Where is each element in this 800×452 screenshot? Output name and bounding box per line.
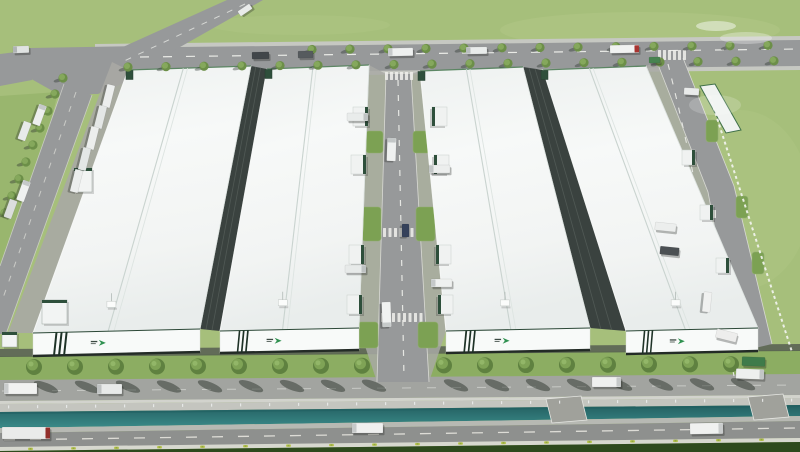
structure-green-edge: [42, 300, 67, 303]
crosswalk-bar: [678, 50, 681, 60]
tree-crown-light: [51, 90, 57, 96]
hedge-bush: [544, 441, 549, 444]
tree-crown-light: [574, 43, 580, 49]
truck-body: [690, 423, 723, 435]
truck: [736, 369, 766, 382]
canal-post: [472, 401, 473, 404]
tree-highlight: [316, 360, 321, 365]
truck-cab: [388, 138, 396, 143]
dock-door: [710, 205, 713, 220]
scene-canvas: [0, 0, 800, 452]
canal-post: [95, 405, 96, 408]
hedge-bush: [71, 447, 76, 450]
bush-core: [374, 444, 376, 446]
dock-door: [363, 155, 366, 174]
rooftop-unit-shadow: [108, 308, 117, 310]
tree-highlight: [111, 361, 116, 366]
crosswalk-bar: [420, 313, 423, 322]
tree-crown-light: [29, 141, 35, 147]
truck-body: [252, 52, 269, 59]
canal-post: [356, 402, 357, 405]
canal-post: [646, 400, 647, 403]
tree-crown-light: [732, 57, 738, 63]
truck: [431, 279, 454, 289]
tree-highlight: [644, 359, 649, 364]
tree-highlight: [480, 360, 485, 365]
truck: [384, 138, 396, 163]
gatehouse: [42, 300, 69, 326]
logo-text-mark: [91, 343, 96, 344]
canal-post: [733, 399, 734, 402]
tree-crown-light: [352, 61, 358, 67]
truck: [659, 246, 680, 258]
landscape-patch: [706, 120, 718, 142]
truck-cab: [466, 48, 471, 54]
landscape-patch: [366, 131, 383, 153]
corner-stair-unit: [265, 70, 272, 79]
bush-core: [116, 447, 118, 449]
truck-cab: [759, 370, 764, 379]
rooftop-unit: [671, 300, 680, 306]
truck-body: [352, 423, 383, 433]
truck-body: [4, 383, 37, 394]
hedge-bush: [372, 443, 377, 446]
hedge-bush: [716, 439, 721, 442]
truck: [345, 265, 368, 275]
truck: [684, 88, 701, 98]
tree-crown-light: [770, 57, 776, 63]
truck: [252, 52, 271, 62]
tree-crown-light: [422, 44, 428, 50]
corner-stair-unit: [418, 72, 425, 81]
bush-core: [761, 439, 763, 441]
crosswalk-bar: [405, 72, 408, 80]
tree-crown-light: [580, 59, 586, 65]
tree-crown-light: [8, 192, 14, 198]
truck: [298, 51, 315, 60]
west-exit-road: [0, 50, 32, 86]
bush-core: [202, 446, 204, 448]
tree-crown-light: [466, 60, 472, 66]
tree-crown-light: [15, 175, 21, 181]
tree-crown-light: [238, 62, 244, 68]
hedge-bush: [415, 443, 420, 446]
tree-highlight: [439, 360, 444, 365]
canal-post: [559, 401, 560, 404]
dock-door: [726, 258, 729, 273]
canal-post: [211, 404, 212, 407]
dock-bay: [347, 295, 364, 316]
tree-crown-light: [124, 63, 130, 69]
tree-highlight: [603, 359, 608, 364]
tree-crown-light: [764, 41, 770, 47]
truck-body: [402, 224, 409, 237]
tree-highlight: [562, 359, 567, 364]
crosswalk-bar: [389, 228, 392, 237]
truck-cab: [97, 385, 102, 394]
crosswalk-bar: [673, 50, 676, 60]
tree-highlight: [357, 360, 362, 365]
truck: [4, 383, 39, 396]
truck-cab: [13, 47, 17, 53]
rooftop-unit-shadow: [672, 306, 681, 308]
tree-highlight: [275, 361, 280, 366]
truck: [400, 224, 409, 239]
rooftop-unit: [278, 300, 287, 306]
landscape-patch: [752, 252, 764, 274]
tree-crown-light: [59, 74, 65, 80]
canal-post: [443, 402, 444, 405]
tree-crown-light: [428, 60, 434, 66]
dock-bay: [436, 295, 453, 316]
canal-post: [588, 400, 589, 403]
truck-cab: [362, 266, 367, 273]
canal-post: [124, 404, 125, 407]
bush-core: [30, 448, 32, 450]
dock-door: [692, 150, 695, 165]
tree-crown-light: [688, 42, 694, 48]
canal-post: [414, 402, 415, 405]
bush-core: [417, 443, 419, 445]
truck: [429, 165, 452, 175]
logo-text-mark: [267, 341, 272, 342]
tree-highlight: [70, 361, 75, 366]
tree-highlight: [521, 360, 526, 365]
landscape-patch: [358, 322, 378, 348]
tree-highlight: [29, 362, 34, 367]
warehouse-4-facade: [626, 328, 758, 354]
canal-post: [298, 403, 299, 406]
canal-post: [704, 399, 705, 402]
canal-post: [501, 401, 502, 404]
truck-cab: [383, 322, 391, 327]
truck: [649, 57, 662, 65]
canal-post: [153, 404, 154, 407]
bush-core: [331, 444, 333, 446]
tree-highlight: [726, 359, 731, 364]
tree-crown-light: [390, 60, 396, 66]
hedge-bush: [200, 446, 205, 449]
landscape-patch: [362, 207, 381, 241]
truck-cab: [617, 378, 622, 387]
haze: [689, 95, 741, 115]
tree-crown-light: [504, 59, 510, 65]
logo-text-mark: [91, 341, 98, 342]
dock-bay: [349, 245, 366, 266]
truck-cab: [4, 384, 9, 394]
truck-cab: [634, 45, 639, 52]
truck-body: [649, 57, 660, 63]
truck-body: [298, 51, 313, 58]
truck: [347, 113, 370, 123]
bush-core: [632, 441, 634, 443]
logo-text-mark: [670, 339, 677, 340]
hedge-bush: [458, 442, 463, 445]
hedge-bush: [28, 448, 33, 451]
logo-text-mark: [267, 339, 274, 340]
truck: [379, 302, 391, 329]
rooftop-unit-shadow: [279, 306, 288, 308]
tree-highlight: [234, 361, 239, 366]
bush-core: [460, 443, 462, 445]
tree-crown-light: [460, 44, 466, 50]
tree-highlight: [685, 359, 690, 364]
crosswalk-bar: [394, 228, 397, 237]
canal-post: [385, 402, 386, 405]
tree-crown-light: [650, 42, 656, 48]
tree-crown-light: [498, 44, 504, 50]
logo-text-mark: [495, 341, 500, 342]
hedge-bush: [673, 440, 678, 443]
truck-cab: [388, 49, 393, 56]
tree-crown-light: [694, 58, 700, 64]
canal-post: [762, 399, 763, 402]
hedge-bush: [501, 442, 506, 445]
crosswalk-bar: [663, 50, 666, 60]
canal-post: [66, 405, 67, 408]
canal-post: [530, 401, 531, 404]
bush-core: [245, 445, 247, 447]
truck-cab: [352, 424, 357, 433]
crosswalk-bar: [400, 72, 403, 80]
truck-cab: [46, 428, 51, 439]
hedge-bush: [243, 445, 248, 448]
corner-stair-unit: [541, 71, 548, 80]
crosswalk-bar: [409, 313, 412, 322]
hedge-bush: [114, 447, 119, 450]
crosswalk-bar: [383, 228, 386, 237]
bush-core: [546, 442, 548, 444]
truck-body: [2, 427, 50, 439]
tree-crown-light: [314, 61, 320, 67]
bush-core: [589, 441, 591, 443]
dock-bay: [682, 150, 697, 167]
canal-crossing-pad: [546, 396, 587, 423]
crosswalk-bar: [398, 313, 401, 322]
truck: [97, 384, 124, 396]
tree-crown-light: [542, 59, 548, 65]
tree-highlight: [152, 361, 157, 366]
crosswalk-bar: [414, 313, 417, 322]
structure-roof: [42, 300, 67, 324]
canal-post: [8, 405, 9, 408]
truck: [352, 423, 385, 435]
hedge-bush: [329, 444, 334, 447]
dock-bay: [434, 245, 451, 266]
truck: [388, 48, 415, 59]
bush-core: [718, 439, 720, 441]
truck-cab: [431, 280, 436, 287]
cloud: [696, 21, 736, 31]
truck: [742, 357, 767, 369]
truck: [466, 47, 489, 57]
tree-crown-light: [536, 43, 542, 49]
canal-post: [182, 404, 183, 407]
crosswalk-bar: [390, 72, 393, 80]
crosswalk-bar: [392, 313, 395, 322]
dock-bay: [430, 107, 447, 128]
dock-door: [361, 245, 364, 264]
truck: [592, 377, 623, 389]
tree-crown-light: [308, 46, 314, 52]
bush-core: [675, 440, 677, 442]
canal-post: [675, 400, 676, 403]
bush-core: [159, 446, 161, 448]
crosswalk-bar: [403, 313, 406, 322]
truck: [2, 427, 52, 441]
crosswalk-bar: [668, 50, 671, 60]
tree-crown-light: [162, 63, 168, 69]
canal-post: [269, 403, 270, 406]
dock-door: [432, 107, 435, 126]
truck-cab: [364, 114, 369, 121]
truck-cab: [718, 423, 723, 433]
dock-door: [436, 245, 439, 264]
truck-cab: [429, 166, 434, 173]
crosswalk-bar: [683, 50, 686, 60]
tree-crown-light: [276, 62, 282, 68]
landscape-patch: [418, 322, 438, 348]
truck: [610, 45, 641, 56]
grass-highlight: [210, 15, 390, 35]
hedge-bush: [157, 446, 162, 449]
logo-text-mark: [670, 342, 675, 343]
truck: [690, 423, 725, 437]
canal-post: [37, 405, 38, 408]
dock-bay: [700, 205, 715, 222]
hedge-bush: [759, 439, 764, 442]
hedge-bush: [587, 441, 592, 444]
crosswalk-bar: [395, 72, 398, 80]
canal-post: [617, 400, 618, 403]
dock-door: [359, 295, 362, 314]
dock-bay: [351, 155, 368, 176]
dock-bay: [716, 258, 731, 275]
gatehouse: [2, 332, 19, 349]
bush-core: [503, 442, 505, 444]
logo-text-mark: [495, 339, 502, 340]
dock-door: [438, 295, 441, 314]
bush-core: [73, 448, 75, 450]
tree-highlight: [193, 361, 198, 366]
corner-stair-unit: [126, 71, 133, 80]
crosswalk-bar: [411, 228, 414, 237]
hedge-bush: [286, 444, 291, 447]
rooftop-unit: [500, 300, 509, 306]
tree-crown-light: [618, 58, 624, 64]
structure-green-edge: [2, 332, 17, 335]
crosswalk-bar: [410, 72, 413, 80]
industrial-park-rendering: [0, 0, 800, 452]
bush-core: [288, 445, 290, 447]
tree-crown-light: [200, 62, 206, 68]
truck: [13, 46, 31, 56]
canal-crossing-pad: [748, 394, 789, 420]
hedge-bush: [630, 440, 635, 443]
canal-post: [327, 403, 328, 406]
canal-post: [791, 399, 792, 402]
tree-crown-light: [22, 158, 28, 164]
canal-post: [240, 403, 241, 406]
landscape-patch: [416, 207, 435, 241]
cloud: [720, 32, 772, 44]
rooftop-unit-shadow: [501, 306, 510, 308]
tree-crown-light: [346, 45, 352, 51]
truck-body: [742, 357, 765, 367]
rooftop-unit: [107, 301, 116, 307]
truck-body: [684, 88, 699, 96]
crosswalk-bar: [385, 72, 388, 80]
